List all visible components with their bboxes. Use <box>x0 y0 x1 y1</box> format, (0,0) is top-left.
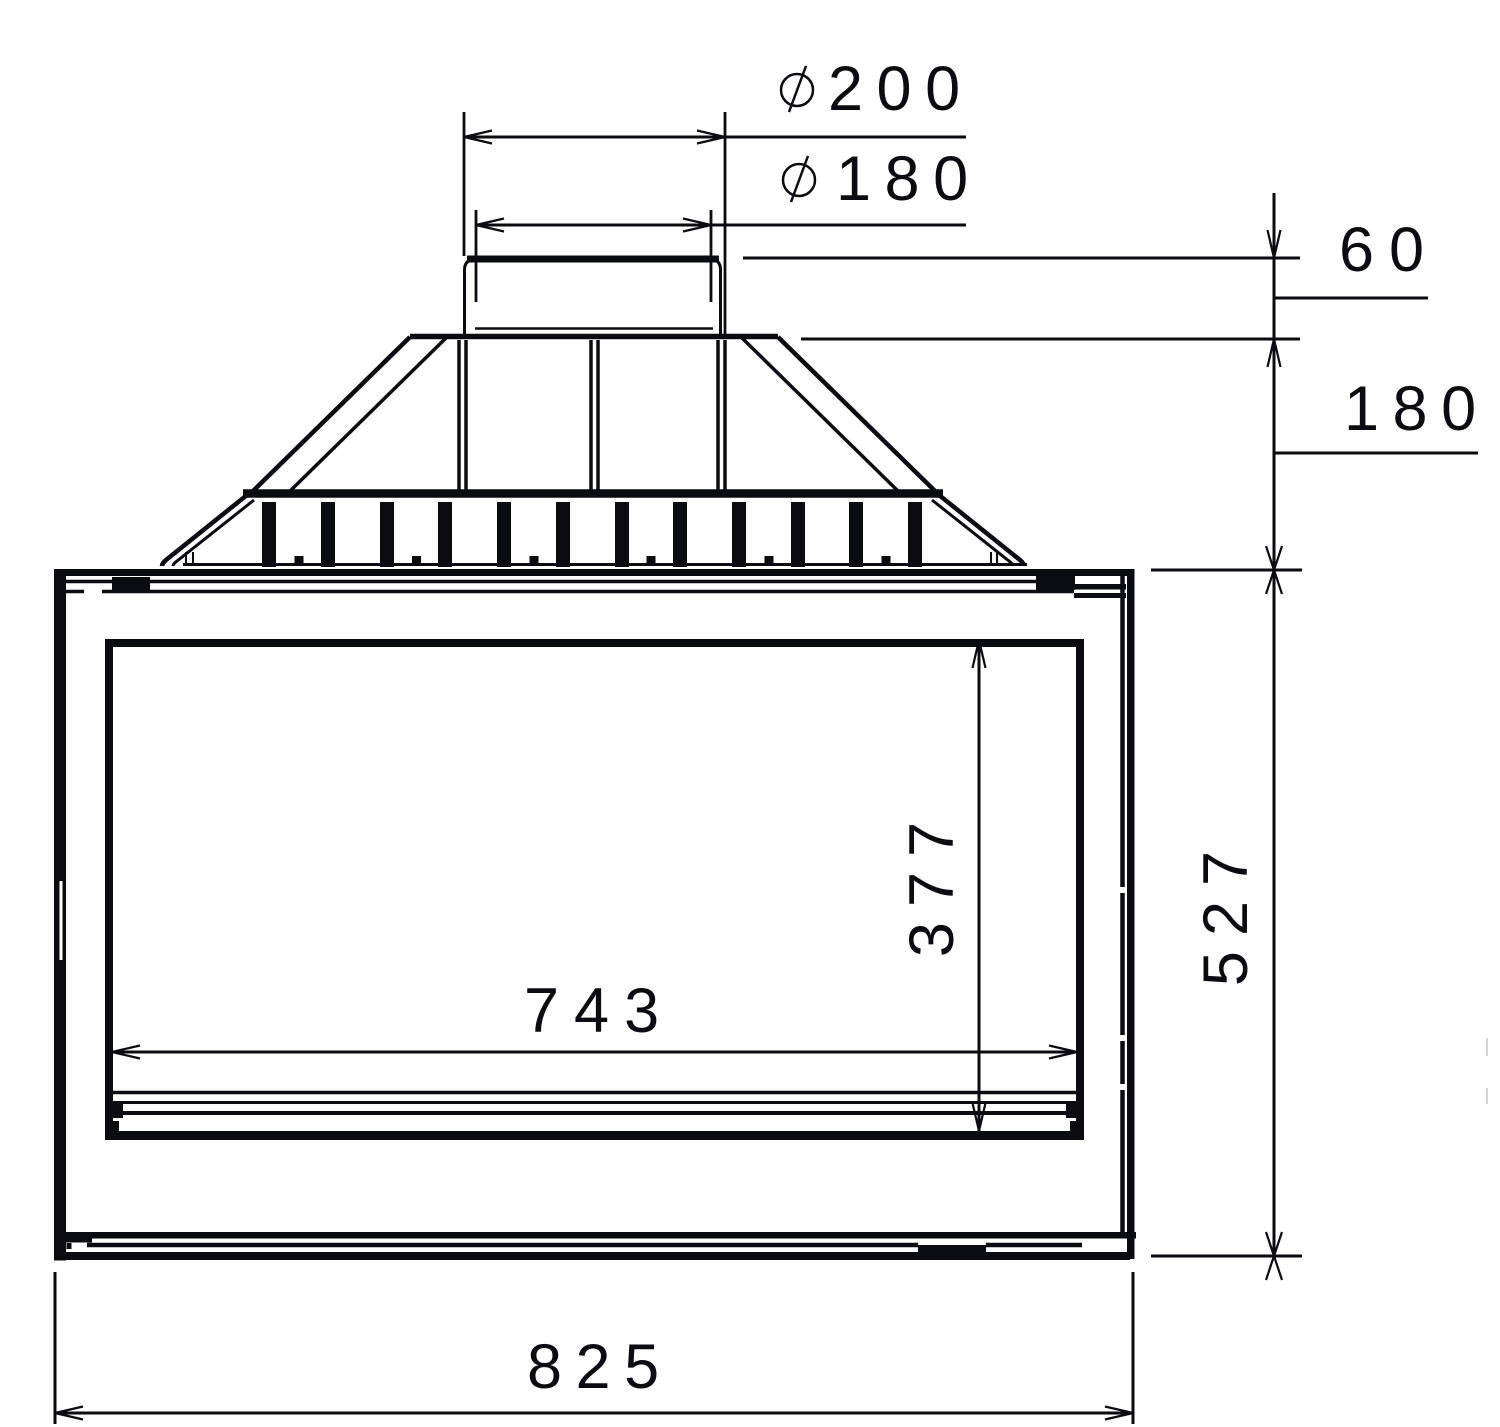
svg-text:60: 60 <box>1339 215 1439 285</box>
svg-text:743: 743 <box>524 976 674 1046</box>
svg-text:527: 527 <box>1191 836 1261 986</box>
svg-text:200: 200 <box>828 54 974 124</box>
svg-text:377: 377 <box>897 807 967 957</box>
svg-text:180: 180 <box>836 144 982 214</box>
svg-text:180: 180 <box>1344 374 1490 444</box>
svg-text:825: 825 <box>527 1332 673 1402</box>
